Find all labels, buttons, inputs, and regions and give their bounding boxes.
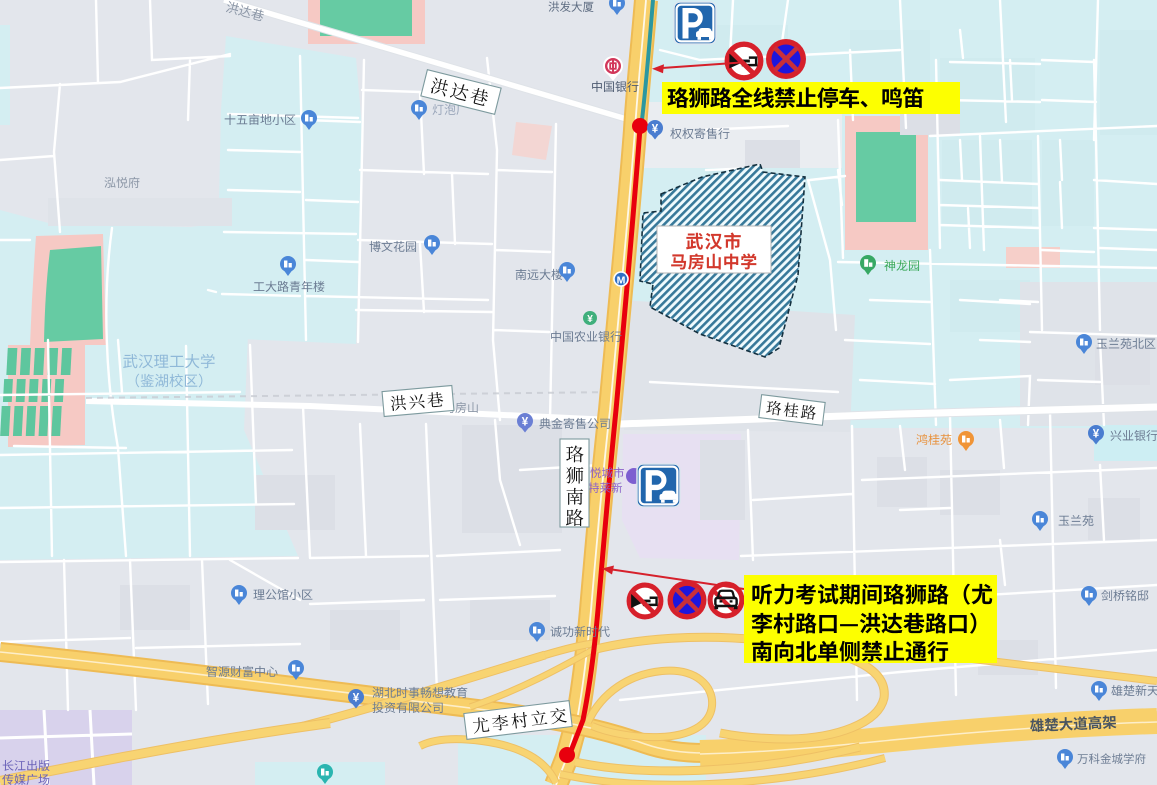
svg-text:¥: ¥ bbox=[652, 123, 659, 135]
svg-text:¥: ¥ bbox=[587, 314, 593, 325]
svg-text:¥: ¥ bbox=[522, 416, 529, 428]
svg-text:¥: ¥ bbox=[353, 692, 360, 704]
svg-text:M: M bbox=[617, 274, 626, 286]
svg-text:¥: ¥ bbox=[1093, 428, 1100, 440]
